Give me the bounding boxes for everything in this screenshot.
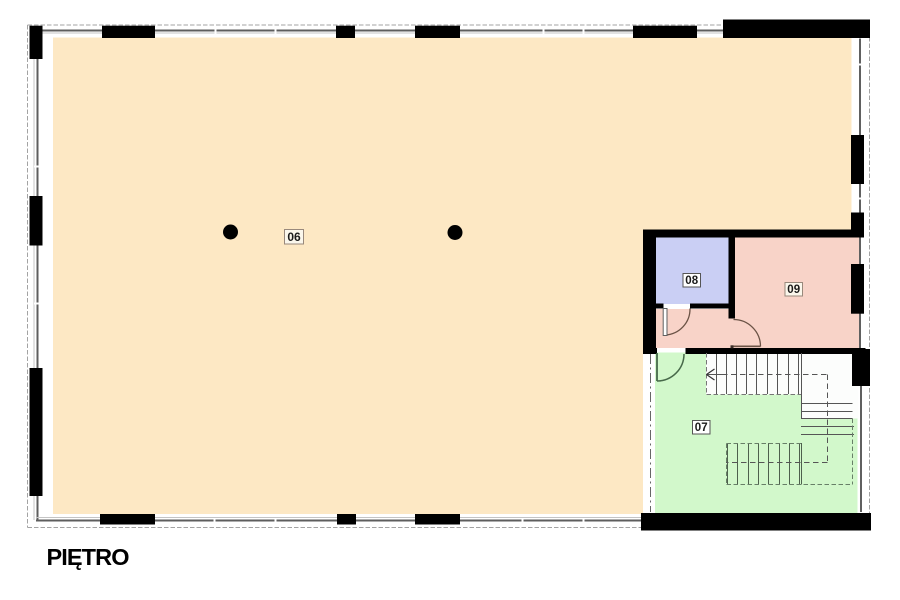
svg-text:06: 06 [287,230,301,244]
svg-text:08: 08 [685,275,698,287]
svg-text:PIĘTRO: PIĘTRO [47,544,130,570]
svg-text:09: 09 [787,284,800,296]
svg-text:07: 07 [695,422,708,434]
